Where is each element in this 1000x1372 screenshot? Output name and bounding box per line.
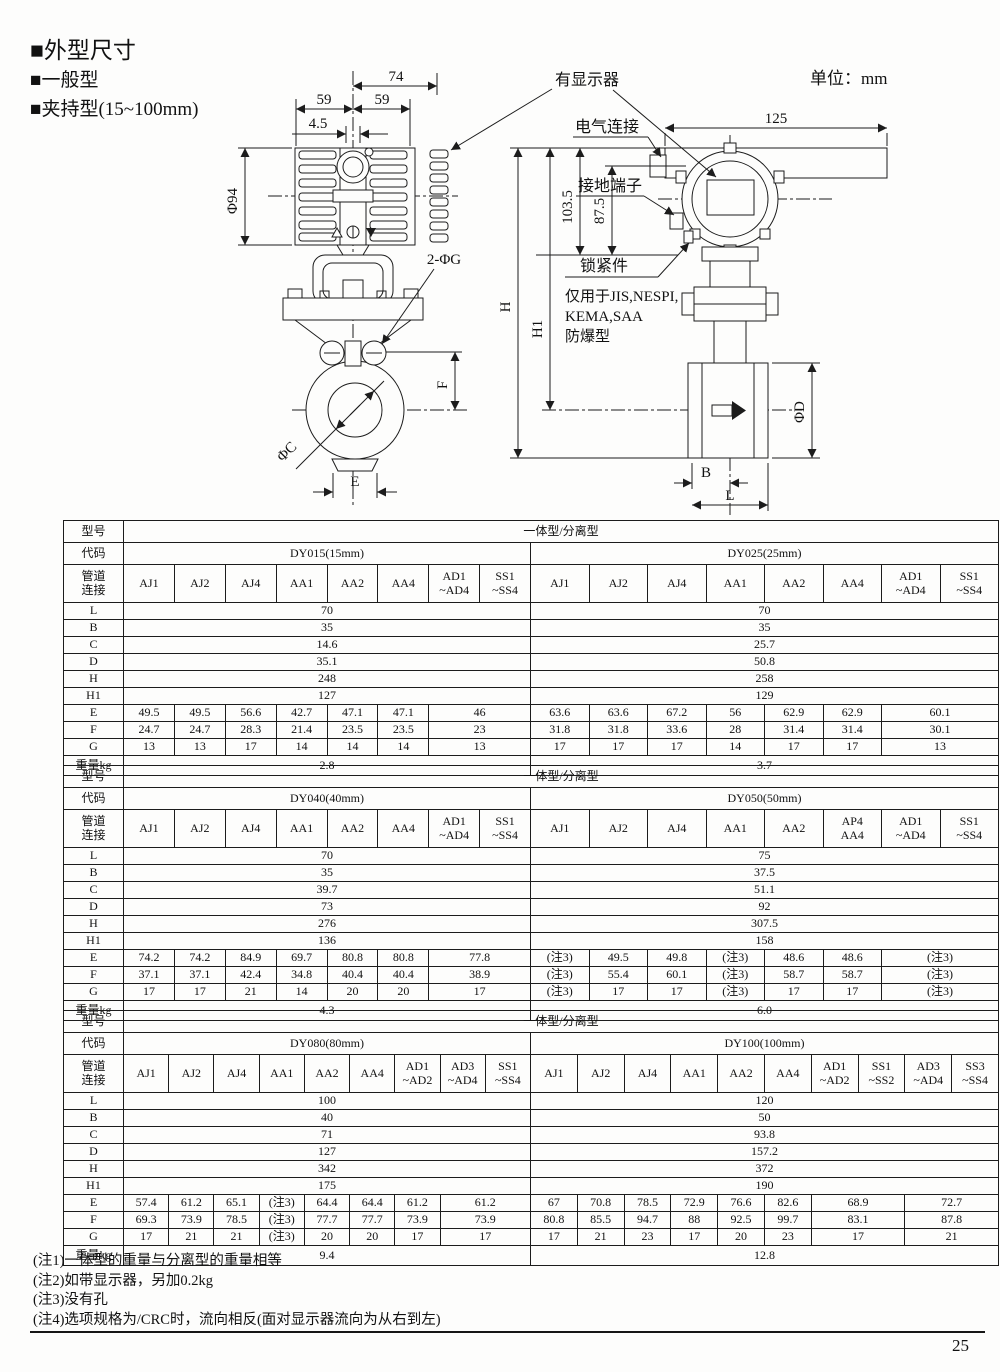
- table-cell: (注3): [531, 967, 590, 984]
- table-cell: 78.5: [214, 1212, 259, 1229]
- callout-electrical-label: 电气连接: [575, 118, 639, 136]
- table-cell: AD1 ~AD2: [395, 1055, 440, 1093]
- drawing-callouts: 有显示器 电气连接 接地端子 锁紧件 仅用于JIS,NESPI, KEMA,SA…: [451, 71, 716, 345]
- table-cell: 49.5: [174, 705, 225, 722]
- table-cell: 33.6: [648, 722, 707, 739]
- table-cell: 48.6: [765, 950, 824, 967]
- row-label-cell: F: [64, 967, 124, 984]
- table-cell: 35.1: [124, 654, 531, 671]
- table-cell: 23.5: [327, 722, 378, 739]
- table-cell: 37.1: [174, 967, 225, 984]
- dim-H-label: H: [498, 301, 514, 312]
- table-cell: 61.2: [395, 1195, 440, 1212]
- table-cell: 158: [531, 933, 999, 950]
- table-cell: AA1: [706, 810, 765, 848]
- row-label-cell: 管道 连接: [64, 1055, 124, 1093]
- table-cell: 127: [124, 688, 531, 705]
- table-cell: 99.7: [764, 1212, 811, 1229]
- table-cell: AA2: [765, 810, 824, 848]
- table-cell: 31.8: [589, 722, 648, 739]
- table-cell: 258: [531, 671, 999, 688]
- dimension-table: 型号一体型/分离型代码DY015(15mm)DY025(25mm)管道 连接AJ…: [63, 520, 999, 776]
- table-cell: AA2: [304, 1055, 349, 1093]
- table-cell: AJ2: [589, 810, 648, 848]
- table-cell: 35: [124, 865, 531, 882]
- table-cell: 20: [304, 1229, 349, 1246]
- row-label-cell: 型号: [64, 521, 124, 543]
- row-label-cell: F: [64, 722, 124, 739]
- row-label-cell: L: [64, 848, 124, 865]
- dimension-table: 型号一体型/分离型代码DY080(80mm)DY100(100mm)管道 连接A…: [63, 1010, 999, 1266]
- callout-ground-label: 接地端子: [578, 177, 642, 195]
- row-label-cell: 管道 连接: [64, 810, 124, 848]
- table-cell: 73.9: [440, 1212, 530, 1229]
- table-cell: 62.9: [823, 705, 882, 722]
- table-cell: 17: [823, 984, 882, 1001]
- table-cell: AA4: [350, 1055, 395, 1093]
- footnote-1: (注1)一体型的重量与分离型的重量相等: [33, 1252, 441, 1272]
- table-cell: 72.9: [671, 1195, 718, 1212]
- table-cell: 69.7: [276, 950, 327, 967]
- table-cell: AJ4: [648, 565, 707, 603]
- table-cell: 28.3: [225, 722, 276, 739]
- callout-display-label: 有显示器: [555, 71, 619, 89]
- table-cell: DY100(100mm): [530, 1033, 998, 1055]
- table-cell: 17: [429, 984, 531, 1001]
- table-cell: AD1 ~AD4: [882, 565, 941, 603]
- table-cell: 92.5: [718, 1212, 765, 1229]
- row-label-cell: 型号: [64, 1011, 124, 1033]
- row-label-cell: E: [64, 705, 124, 722]
- table-cell: (注3): [259, 1212, 304, 1229]
- table-cell: 48.6: [823, 950, 882, 967]
- table-cell: DY080(80mm): [124, 1033, 531, 1055]
- table-cell: AA4: [764, 1055, 811, 1093]
- table-cell: 93.8: [530, 1127, 998, 1144]
- table-cell: 40.4: [378, 967, 429, 984]
- table-cell: 76.6: [718, 1195, 765, 1212]
- row-label-cell: B: [64, 1110, 124, 1127]
- table-cell: 60.1: [648, 967, 707, 984]
- table-cell: 42.4: [225, 967, 276, 984]
- table-cell: 17: [648, 984, 707, 1001]
- table-cell: 31.4: [765, 722, 824, 739]
- table-cell: 47.1: [327, 705, 378, 722]
- table-cell: (注3): [706, 950, 765, 967]
- table-cell: 23.5: [378, 722, 429, 739]
- table-cell: (注3): [259, 1229, 304, 1246]
- table-cell: SS1 ~SS4: [940, 810, 999, 848]
- row-label-cell: B: [64, 620, 124, 637]
- table-cell: 24.7: [174, 722, 225, 739]
- table-cell: AJ1: [531, 565, 590, 603]
- table-cell: AA4: [823, 565, 882, 603]
- table-cell: 31.8: [531, 722, 590, 739]
- row-label-cell: H: [64, 1161, 124, 1178]
- table-cell: AJ1: [531, 810, 590, 848]
- table-cell: 157.2: [530, 1144, 998, 1161]
- table-cell: 14: [327, 739, 378, 756]
- table-cell: 13: [882, 739, 999, 756]
- table-cell: 17: [648, 739, 707, 756]
- dim-F-label: F: [435, 381, 451, 389]
- table-cell: 72.7: [905, 1195, 999, 1212]
- dim-L-label: L: [725, 488, 734, 504]
- table-cell: 55.4: [589, 967, 648, 984]
- table-cell: 67.2: [648, 705, 707, 722]
- row-label-cell: 管道 连接: [64, 565, 124, 603]
- table-cell: 35: [531, 620, 999, 637]
- table-cell: 51.1: [531, 882, 999, 899]
- table-cell: 62.9: [765, 705, 824, 722]
- table-cell: AJ1: [124, 565, 175, 603]
- table-cell: 80.8: [327, 950, 378, 967]
- callout-lock-label: 锁紧件: [580, 257, 628, 275]
- table-cell: 13: [174, 739, 225, 756]
- table-cell: 30.1: [882, 722, 999, 739]
- table-cell: 78.5: [624, 1195, 671, 1212]
- table-cell: 46: [429, 705, 531, 722]
- table-cell: 92: [531, 899, 999, 916]
- table-cell: 35: [124, 620, 531, 637]
- table-cell: SS1 ~SS4: [480, 565, 531, 603]
- row-label-cell: F: [64, 1212, 124, 1229]
- table-cell: 17: [765, 984, 824, 1001]
- table-cell: AA1: [276, 565, 327, 603]
- dim-74-label: 74: [389, 69, 405, 85]
- subtitle-wafer-type: ■夹持型(15~100mm): [30, 94, 198, 121]
- bore-phiC-label: ΦC: [274, 439, 300, 465]
- table-cell: 80.8: [378, 950, 429, 967]
- table-cell: 65.1: [214, 1195, 259, 1212]
- table-cell: AD1 ~AD4: [882, 810, 941, 848]
- table-cell: AJ2: [589, 565, 648, 603]
- table-cell: 20: [327, 984, 378, 1001]
- table-cell: 64.4: [304, 1195, 349, 1212]
- table-cell: 70: [531, 603, 999, 620]
- table-cell: 14: [706, 739, 765, 756]
- footnotes: (注1)一体型的重量与分离型的重量相等 (注2)如带显示器，另加0.2kg (注…: [33, 1252, 441, 1330]
- front-view-drawing: [268, 71, 468, 505]
- table-cell: 一体型/分离型: [124, 1011, 999, 1033]
- table-cell: AD3 ~AD4: [440, 1055, 485, 1093]
- table-cell: 77.7: [304, 1212, 349, 1229]
- table-cell: 23: [429, 722, 531, 739]
- table-cell: 85.5: [577, 1212, 624, 1229]
- row-label-cell: 型号: [64, 766, 124, 788]
- table-cell: (注3): [531, 950, 590, 967]
- row-label-cell: 代码: [64, 1033, 124, 1055]
- row-label-cell: G: [64, 984, 124, 1001]
- table-cell: 74.2: [174, 950, 225, 967]
- table-cell: SS1 ~SS2: [858, 1055, 905, 1093]
- table-cell: 21.4: [276, 722, 327, 739]
- table-cell: 21: [214, 1229, 259, 1246]
- dim-103-5-label: 103.5: [560, 190, 576, 224]
- table-cell: 39.7: [124, 882, 531, 899]
- table-cell: SS1 ~SS4: [940, 565, 999, 603]
- table-cell: AD1 ~AD4: [429, 565, 480, 603]
- row-label-cell: G: [64, 739, 124, 756]
- unit-label: 单位：mm: [810, 64, 887, 89]
- table-cell: AD1 ~AD2: [811, 1055, 858, 1093]
- table-cell: 12.8: [530, 1246, 998, 1266]
- table-cell: 70: [124, 848, 531, 865]
- table-cell: 17: [823, 739, 882, 756]
- table-cell: 87.8: [905, 1212, 999, 1229]
- dim-59-left-label: 59: [317, 92, 332, 108]
- table-cell: 17: [765, 739, 824, 756]
- table-cell: 50.8: [531, 654, 999, 671]
- table-cell: 307.5: [531, 916, 999, 933]
- dim-H1-label: H1: [530, 320, 546, 338]
- row-label-cell: L: [64, 1093, 124, 1110]
- table-cell: 31.4: [823, 722, 882, 739]
- table-cell: AA4: [378, 810, 429, 848]
- dim-E-label: E: [350, 474, 359, 490]
- table-cell: DY040(40mm): [124, 788, 531, 810]
- lock-note-line2: KEMA,SAA: [565, 309, 643, 325]
- row-label-cell: H1: [64, 688, 124, 705]
- table-cell: AP4 AA4: [823, 810, 882, 848]
- table-cell: 38.9: [429, 967, 531, 984]
- table-cell: 80.8: [530, 1212, 577, 1229]
- table-cell: AJ1: [530, 1055, 577, 1093]
- dim-B-label: B: [701, 465, 711, 481]
- table-cell: 14.6: [124, 637, 531, 654]
- row-label-cell: H1: [64, 933, 124, 950]
- locking-part: [684, 231, 693, 243]
- table-cell: 49.8: [648, 950, 707, 967]
- table-cell: 49.5: [124, 705, 175, 722]
- table-cell: DY050(50mm): [531, 788, 999, 810]
- table-cell: 13: [429, 739, 531, 756]
- dim-125-label: 125: [765, 111, 788, 127]
- table-cell: AD3 ~AD4: [905, 1055, 952, 1093]
- table-cell: 74.2: [124, 950, 175, 967]
- page-title: ■外型尺寸: [30, 31, 136, 65]
- footnote-3: (注3)没有孔: [33, 1291, 441, 1311]
- table-cell: 13: [124, 739, 175, 756]
- dim-phi94-label: Φ94: [225, 188, 241, 214]
- table-cell: 一体型/分离型: [124, 521, 999, 543]
- table-cell: 63.6: [589, 705, 648, 722]
- table-cell: 17: [589, 984, 648, 1001]
- table-cell: 60.1: [882, 705, 999, 722]
- table-cell: AA2: [327, 565, 378, 603]
- table-cell: 14: [378, 739, 429, 756]
- table-cell: 88: [671, 1212, 718, 1229]
- table-cell: 21: [905, 1229, 999, 1246]
- table-cell: AJ4: [225, 565, 276, 603]
- table-cell: AA1: [706, 565, 765, 603]
- table-cell: 17: [440, 1229, 530, 1246]
- table-cell: 82.6: [764, 1195, 811, 1212]
- table-cell: AJ1: [124, 1055, 169, 1093]
- table-cell: 69.3: [124, 1212, 169, 1229]
- table-cell: 127: [124, 1144, 531, 1161]
- table-cell: SS1 ~SS4: [485, 1055, 530, 1093]
- table-cell: 73.9: [169, 1212, 214, 1229]
- table-cell: 248: [124, 671, 531, 688]
- table-cell: 71: [124, 1127, 531, 1144]
- table-cell: 17: [530, 1229, 577, 1246]
- table-cell: (注3): [882, 967, 999, 984]
- page-number: 25: [952, 1336, 969, 1356]
- table-cell: 21: [577, 1229, 624, 1246]
- table-cell: (注3): [882, 984, 999, 1001]
- table-cell: (注3): [259, 1195, 304, 1212]
- table-cell: SS1 ~SS4: [480, 810, 531, 848]
- table-cell: AJ2: [174, 810, 225, 848]
- row-label-cell: 代码: [64, 788, 124, 810]
- table-cell: AJ2: [169, 1055, 214, 1093]
- table-cell: 47.1: [378, 705, 429, 722]
- table-cell: 40.4: [327, 967, 378, 984]
- table-cell: SS3 ~SS4: [952, 1055, 999, 1093]
- table-cell: 136: [124, 933, 531, 950]
- table-cell: 57.4: [124, 1195, 169, 1212]
- table-cell: 17: [589, 739, 648, 756]
- row-label-cell: D: [64, 654, 124, 671]
- dim-table-1: 型号一体型/分离型代码DY015(15mm)DY025(25mm)管道 连接AJ…: [63, 520, 999, 776]
- table-cell: (注3): [882, 950, 999, 967]
- table-cell: 100: [124, 1093, 531, 1110]
- table-cell: AJ4: [624, 1055, 671, 1093]
- row-label-cell: G: [64, 1229, 124, 1246]
- table-cell: (注3): [706, 984, 765, 1001]
- row-label-cell: D: [64, 1144, 124, 1161]
- table-cell: AJ2: [577, 1055, 624, 1093]
- table-cell: AJ4: [648, 810, 707, 848]
- table-cell: 73: [124, 899, 531, 916]
- row-label-cell: B: [64, 865, 124, 882]
- table-cell: 17: [124, 984, 175, 1001]
- row-label-cell: C: [64, 1127, 124, 1144]
- table-cell: AJ2: [174, 565, 225, 603]
- table-cell: 58.7: [765, 967, 824, 984]
- lock-note-line1: 仅用于JIS,NESPI,: [565, 288, 678, 305]
- row-label-cell: H: [64, 916, 124, 933]
- table-cell: 17: [671, 1229, 718, 1246]
- table-cell: 21: [225, 984, 276, 1001]
- row-label-cell: C: [64, 637, 124, 654]
- table-cell: AA4: [378, 565, 429, 603]
- table-cell: AJ4: [214, 1055, 259, 1093]
- dim-87-5-label: 87.5: [592, 198, 608, 224]
- dim-phiD-label: ΦD: [792, 401, 808, 423]
- dimension-table: 型号一体型/分离型代码DY040(40mm)DY050(50mm)管道 连接AJ…: [63, 765, 999, 1021]
- subtitle-general-type: ■一般型: [30, 65, 98, 92]
- row-label-cell: L: [64, 603, 124, 620]
- table-cell: 342: [124, 1161, 531, 1178]
- table-cell: 56.6: [225, 705, 276, 722]
- table-cell: 14: [276, 984, 327, 1001]
- table-cell: 40: [124, 1110, 531, 1127]
- table-cell: 17: [395, 1229, 440, 1246]
- table-cell: 77.8: [429, 950, 531, 967]
- table-cell: 20: [350, 1229, 395, 1246]
- table-cell: 17: [531, 739, 590, 756]
- table-cell: 37.1: [124, 967, 175, 984]
- row-label-cell: 代码: [64, 543, 124, 565]
- table-cell: 276: [124, 916, 531, 933]
- row-label-cell: D: [64, 899, 124, 916]
- table-cell: 120: [530, 1093, 998, 1110]
- table-cell: 61.2: [440, 1195, 530, 1212]
- table-cell: AA2: [718, 1055, 765, 1093]
- table-cell: 28: [706, 722, 765, 739]
- table-cell: 24.7: [124, 722, 175, 739]
- table-cell: 61.2: [169, 1195, 214, 1212]
- table-cell: AA1: [671, 1055, 718, 1093]
- dim-table-3: 型号一体型/分离型代码DY080(80mm)DY100(100mm)管道 连接A…: [63, 1010, 999, 1266]
- table-cell: 56: [706, 705, 765, 722]
- table-cell: 75: [531, 848, 999, 865]
- table-cell: 64.4: [350, 1195, 395, 1212]
- table-cell: 67: [530, 1195, 577, 1212]
- table-cell: 129: [531, 688, 999, 705]
- table-cell: 84.9: [225, 950, 276, 967]
- table-cell: 58.7: [823, 967, 882, 984]
- table-cell: AA1: [276, 810, 327, 848]
- table-cell: 175: [124, 1178, 531, 1195]
- table-cell: AA2: [765, 565, 824, 603]
- bolt-holes-label: 2-ΦG: [427, 252, 461, 268]
- table-cell: 20: [718, 1229, 765, 1246]
- row-label-cell: E: [64, 1195, 124, 1212]
- table-cell: 23: [624, 1229, 671, 1246]
- table-cell: 50: [530, 1110, 998, 1127]
- table-cell: 20: [378, 984, 429, 1001]
- table-cell: AJ1: [124, 810, 175, 848]
- row-label-cell: H1: [64, 1178, 124, 1195]
- dim-4-5-label: 4.5: [309, 116, 328, 132]
- table-cell: 190: [530, 1178, 998, 1195]
- dim-table-2: 型号一体型/分离型代码DY040(40mm)DY050(50mm)管道 连接AJ…: [63, 765, 999, 1021]
- table-cell: 25.7: [531, 637, 999, 654]
- table-cell: 83.1: [811, 1212, 905, 1229]
- page: { "page": { "headings": ["■外型尺寸", "■一般型"…: [0, 0, 1000, 1372]
- table-cell: 34.8: [276, 967, 327, 984]
- table-cell: 77.7: [350, 1212, 395, 1229]
- table-cell: 63.6: [531, 705, 590, 722]
- table-cell: 17: [124, 1229, 169, 1246]
- table-cell: AJ4: [225, 810, 276, 848]
- table-cell: 70: [124, 603, 531, 620]
- table-cell: 17: [174, 984, 225, 1001]
- dim-59-right-label: 59: [375, 92, 390, 108]
- footnote-2: (注2)如带显示器，另加0.2kg: [33, 1272, 441, 1292]
- row-label-cell: E: [64, 950, 124, 967]
- table-cell: 70.8: [577, 1195, 624, 1212]
- table-cell: 23: [764, 1229, 811, 1246]
- footer-rule: [30, 1331, 985, 1333]
- table-cell: 49.5: [589, 950, 648, 967]
- table-cell: DY025(25mm): [531, 543, 999, 565]
- table-cell: (注3): [706, 967, 765, 984]
- table-cell: 73.9: [395, 1212, 440, 1229]
- row-label-cell: C: [64, 882, 124, 899]
- table-cell: 14: [276, 739, 327, 756]
- table-cell: AA2: [327, 810, 378, 848]
- lock-note-line3: 防爆型: [565, 328, 610, 345]
- table-cell: (注3): [531, 984, 590, 1001]
- technical-drawing: 74 59 59 4.5 Φ94 2-ΦG ΦC E F: [30, 55, 980, 515]
- ground-terminal: [670, 213, 683, 229]
- footnote-4: (注4)选项规格为/CRC时，流向相反(面对显示器流向为从右到左): [33, 1311, 441, 1331]
- table-cell: 21: [169, 1229, 214, 1246]
